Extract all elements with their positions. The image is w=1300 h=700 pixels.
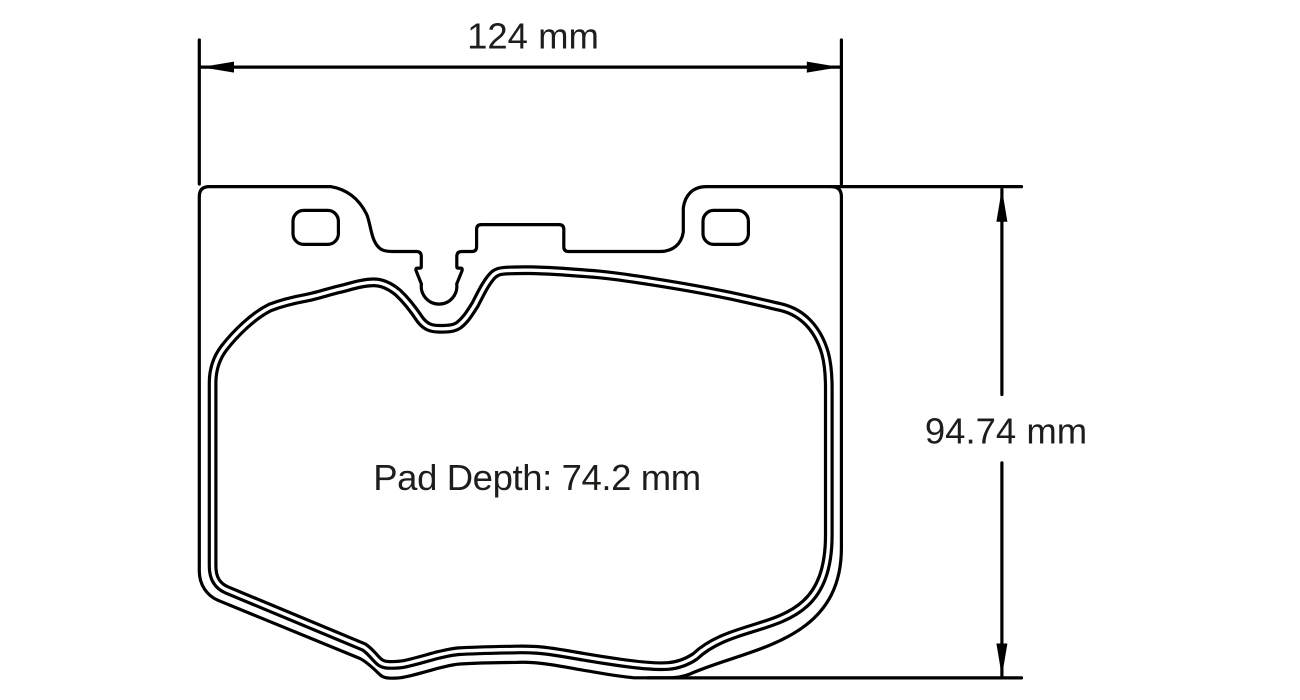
- svg-text:94.74 mm: 94.74 mm: [925, 411, 1087, 452]
- svg-text:Pad Depth: 74.2 mm: Pad Depth: 74.2 mm: [373, 457, 701, 498]
- svg-text:124 mm: 124 mm: [467, 16, 599, 57]
